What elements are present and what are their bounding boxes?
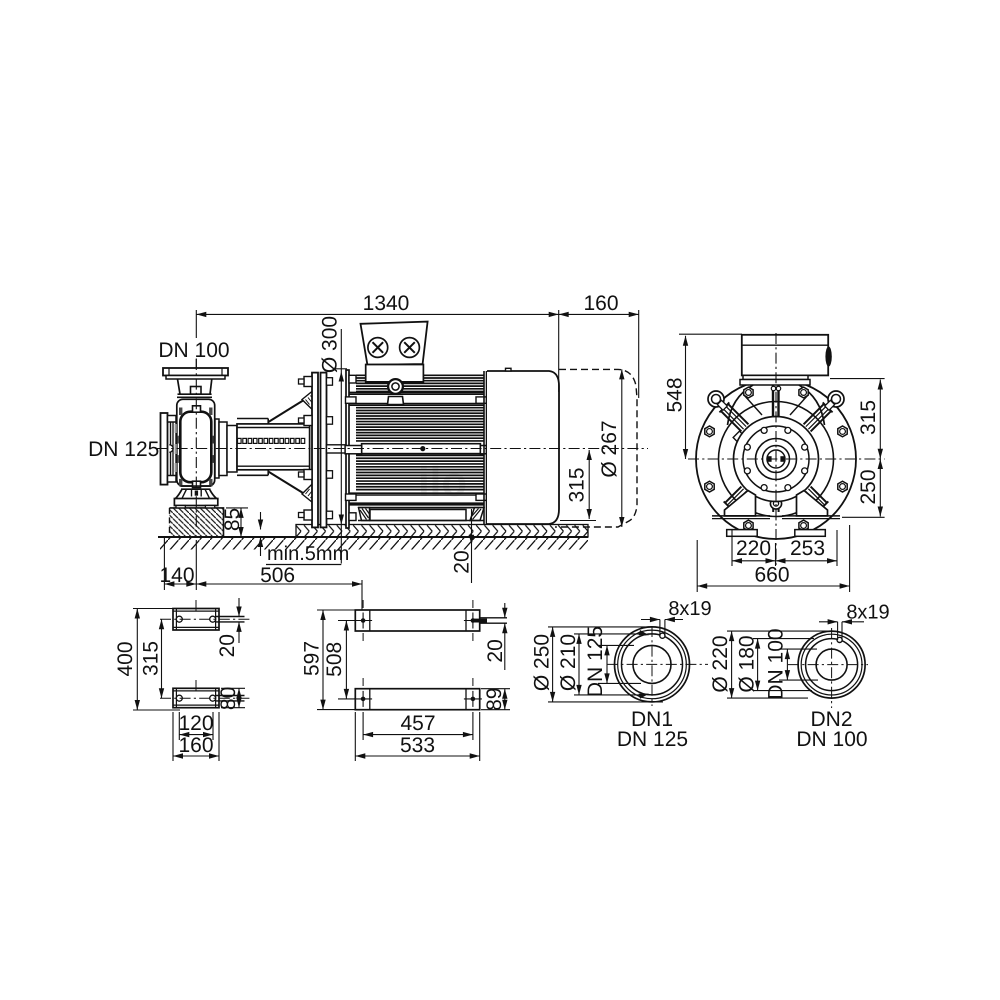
svg-text:DN 125: DN 125 xyxy=(88,438,159,461)
svg-text:8x19: 8x19 xyxy=(668,598,711,620)
svg-text:508: 508 xyxy=(323,642,346,677)
svg-text:533: 533 xyxy=(400,734,435,757)
svg-text:80: 80 xyxy=(217,687,240,710)
svg-text:Ø 250: Ø 250 xyxy=(531,634,554,691)
svg-text:220: 220 xyxy=(736,537,771,560)
svg-text:660: 660 xyxy=(754,564,789,587)
svg-text:400: 400 xyxy=(114,641,137,676)
svg-text:120: 120 xyxy=(178,712,213,735)
svg-text:548: 548 xyxy=(663,377,686,412)
svg-text:8x19: 8x19 xyxy=(846,602,889,624)
svg-text:DN 100: DN 100 xyxy=(765,628,788,699)
svg-text:85: 85 xyxy=(221,508,244,531)
svg-text:250: 250 xyxy=(857,469,880,504)
svg-text:20: 20 xyxy=(216,634,239,657)
svg-text:Ø 210: Ø 210 xyxy=(557,634,580,691)
svg-text:Ø 300: Ø 300 xyxy=(319,316,342,373)
svg-text:315: 315 xyxy=(566,467,589,502)
svg-text:597: 597 xyxy=(300,641,323,676)
svg-text:Ø 180: Ø 180 xyxy=(736,635,759,692)
svg-text:89: 89 xyxy=(483,688,506,711)
svg-text:min.5mm: min.5mm xyxy=(267,543,349,565)
svg-text:DN 100: DN 100 xyxy=(796,728,867,751)
svg-text:Ø 267: Ø 267 xyxy=(598,420,621,477)
svg-text:506: 506 xyxy=(260,564,295,587)
svg-text:315: 315 xyxy=(857,400,880,435)
svg-text:160: 160 xyxy=(583,292,618,315)
svg-text:140: 140 xyxy=(159,564,194,587)
svg-text:20: 20 xyxy=(451,550,474,573)
svg-text:20: 20 xyxy=(484,639,507,662)
svg-text:DN 100: DN 100 xyxy=(158,339,229,362)
svg-text:253: 253 xyxy=(790,537,825,560)
svg-text:160: 160 xyxy=(178,734,213,757)
svg-text:Ø 220: Ø 220 xyxy=(709,635,732,692)
svg-text:315: 315 xyxy=(139,641,162,676)
svg-text:DN 125: DN 125 xyxy=(617,728,688,751)
svg-text:DN 125: DN 125 xyxy=(584,626,607,697)
svg-text:457: 457 xyxy=(400,712,435,735)
svg-text:1340: 1340 xyxy=(363,292,410,315)
